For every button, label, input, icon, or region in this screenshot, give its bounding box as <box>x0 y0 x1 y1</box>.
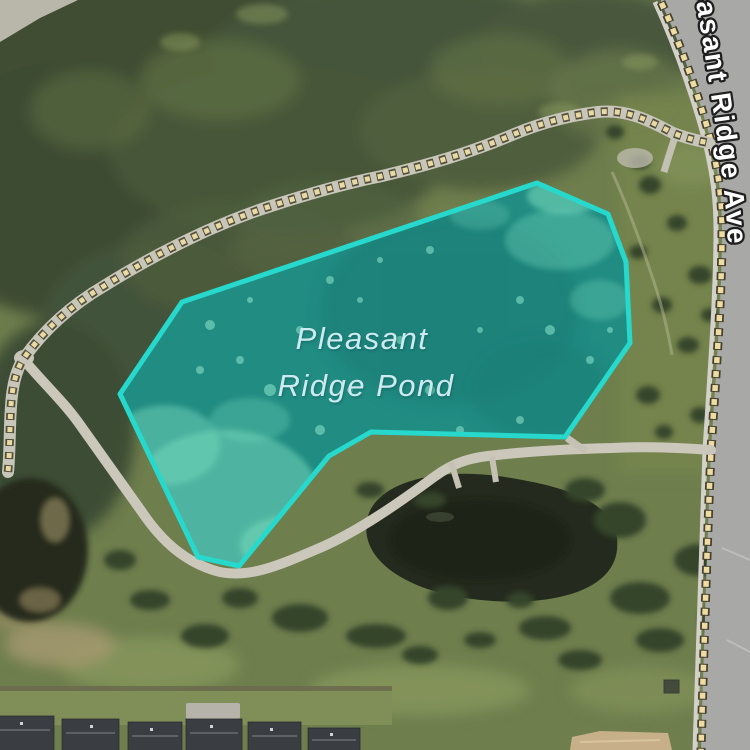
map-canvas[interactable]: Pleasant Ridge Pond Pleasant Ridge Ave <box>0 0 750 750</box>
shed <box>664 680 679 693</box>
satellite-map-view[interactable]: Pleasant Ridge Pond Pleasant Ridge Ave <box>0 0 750 750</box>
pond-label-line2: Ridge Pond <box>277 368 454 403</box>
pond-label-line1: Pleasant <box>296 321 429 356</box>
